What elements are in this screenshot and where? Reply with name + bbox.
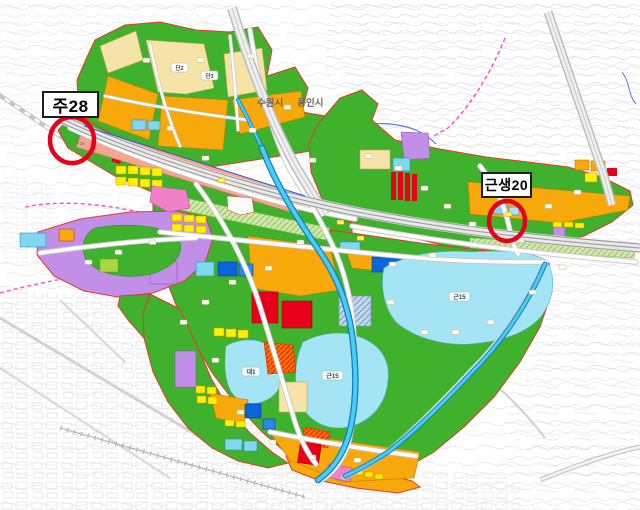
callout-ju28: 주28 <box>42 91 99 118</box>
lake-label: 근15 <box>453 293 466 301</box>
lake-label: 근15 <box>326 372 339 380</box>
lake-label: 대1 <box>247 368 257 376</box>
map-viewport: 단2 단3 근15 근15 대1 주28 주28 근생20 수원시 용인시 <box>0 0 640 510</box>
zone-label: 단2 <box>175 64 183 72</box>
callout-ju28-label: 주28 <box>52 92 88 117</box>
zoning-map: 단2 단3 근15 근15 대1 주28 <box>0 0 640 510</box>
callout-geunsaeng20: 근생20 <box>481 172 532 198</box>
city-boundary-labels: 수원시 용인시 <box>257 95 323 109</box>
city-label-suwon: 수원시 <box>257 95 283 109</box>
callout-geunsaeng20-label: 근생20 <box>485 175 528 195</box>
city-label-yongin: 용인시 <box>297 95 323 109</box>
zone-label: 단3 <box>205 72 213 80</box>
